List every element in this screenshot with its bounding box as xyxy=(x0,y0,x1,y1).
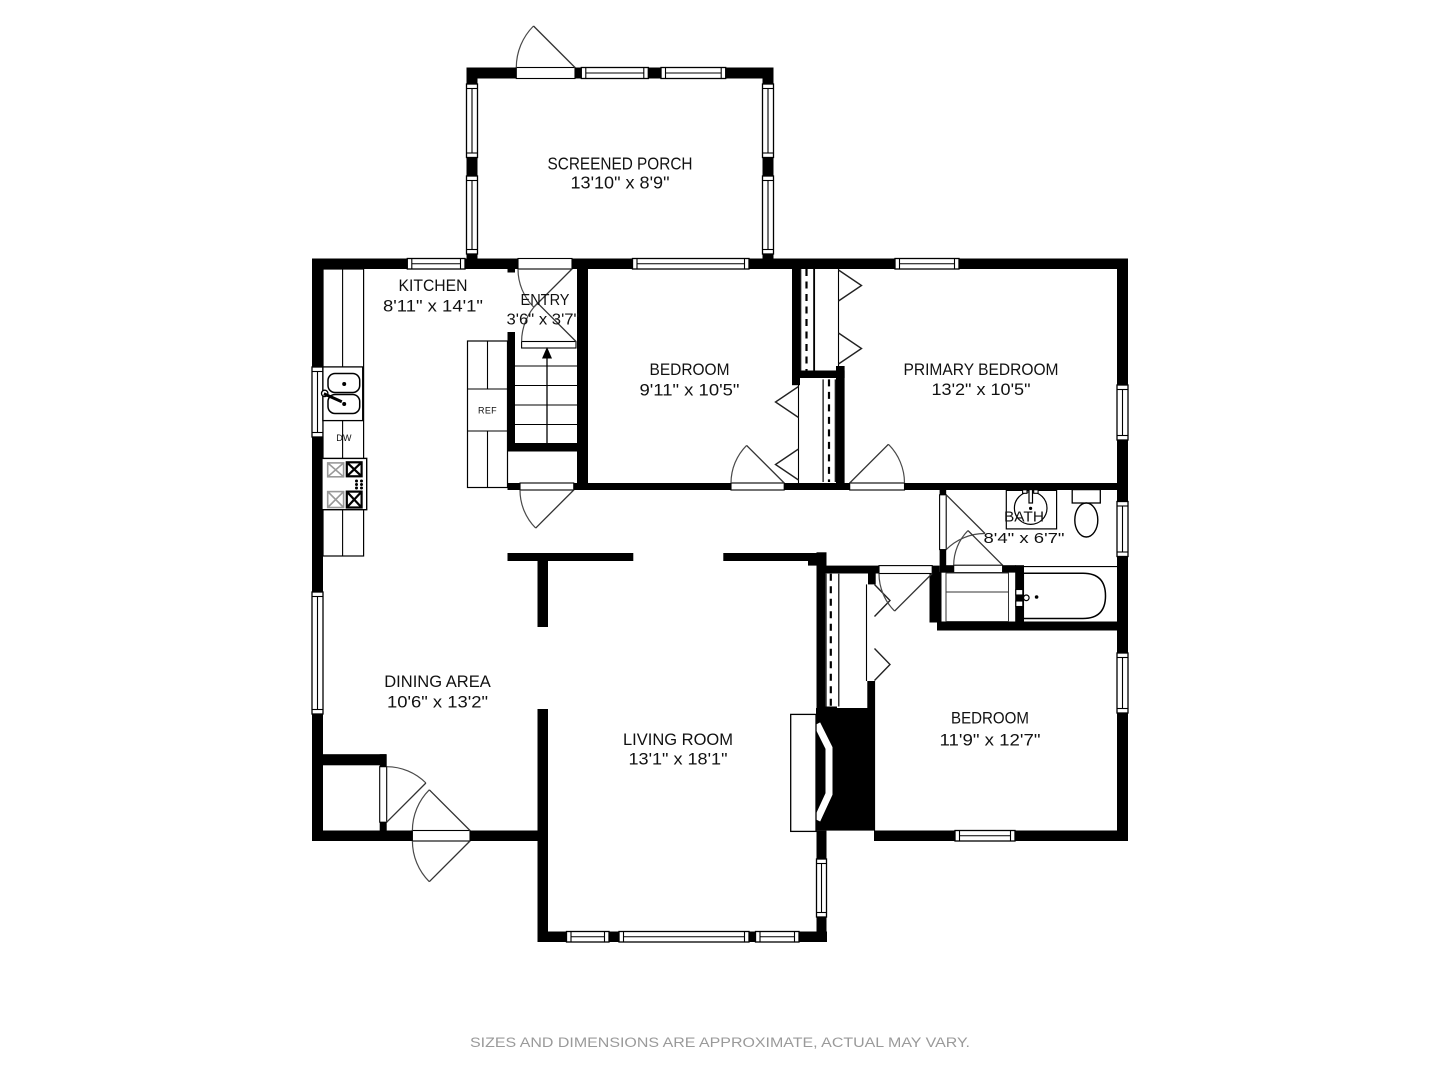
svg-text:8'4" x 6'7": 8'4" x 6'7" xyxy=(984,530,1065,547)
svg-text:10'6" x 13'2": 10'6" x 13'2" xyxy=(387,694,488,712)
svg-text:BATH: BATH xyxy=(1004,509,1044,526)
svg-text:DW: DW xyxy=(336,433,352,443)
svg-text:SIZES AND DIMENSIONS ARE APPRO: SIZES AND DIMENSIONS ARE APPROXIMATE, AC… xyxy=(470,1035,970,1050)
svg-text:13'1" x 18'1": 13'1" x 18'1" xyxy=(629,751,728,769)
svg-text:11'9" x 12'7": 11'9" x 12'7" xyxy=(940,732,1041,750)
svg-text:13'2" x 10'5": 13'2" x 10'5" xyxy=(932,381,1031,399)
svg-text:SCREENED PORCH: SCREENED PORCH xyxy=(548,154,693,174)
svg-text:3'6" x 3'7": 3'6" x 3'7" xyxy=(507,312,580,329)
svg-text:DINING AREA: DINING AREA xyxy=(384,673,491,691)
svg-text:ENTRY: ENTRY xyxy=(521,292,570,309)
svg-text:BEDROOM: BEDROOM xyxy=(951,710,1029,728)
svg-text:REF: REF xyxy=(478,406,497,416)
svg-text:LIVING ROOM: LIVING ROOM xyxy=(623,731,733,749)
svg-text:BEDROOM: BEDROOM xyxy=(650,361,730,379)
svg-text:9'11" x 10'5": 9'11" x 10'5" xyxy=(640,382,740,400)
svg-text:PRIMARY BEDROOM: PRIMARY BEDROOM xyxy=(904,361,1059,379)
svg-text:8'11" x 14'1": 8'11" x 14'1" xyxy=(383,298,483,316)
svg-text:KITCHEN: KITCHEN xyxy=(399,277,468,295)
svg-text:13'10" x 8'9": 13'10" x 8'9" xyxy=(571,173,670,193)
